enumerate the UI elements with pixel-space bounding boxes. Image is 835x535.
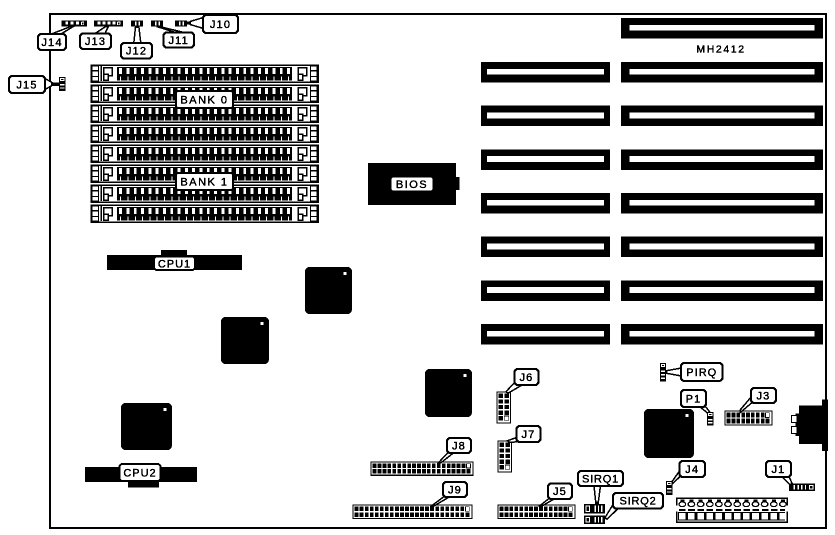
svg-text:PIRQ: PIRQ bbox=[686, 367, 717, 379]
svg-text:MH2412: MH2412 bbox=[696, 44, 745, 56]
svg-text:BIOS: BIOS bbox=[396, 179, 428, 191]
svg-text:J1: J1 bbox=[771, 464, 785, 476]
svg-text:CPU1: CPU1 bbox=[158, 258, 191, 270]
svg-text:J8: J8 bbox=[452, 440, 466, 452]
svg-text:J7: J7 bbox=[521, 429, 535, 441]
svg-text:J12: J12 bbox=[126, 46, 147, 58]
svg-text:CPU2: CPU2 bbox=[123, 467, 156, 479]
svg-text:J13: J13 bbox=[85, 36, 106, 48]
svg-text:J11: J11 bbox=[168, 35, 189, 47]
svg-text:SIRQ1: SIRQ1 bbox=[582, 473, 619, 485]
svg-text:BANK 1: BANK 1 bbox=[180, 176, 228, 188]
svg-text:J15: J15 bbox=[16, 79, 37, 91]
svg-text:BANK 0: BANK 0 bbox=[180, 94, 228, 106]
svg-text:SIRQ2: SIRQ2 bbox=[619, 496, 656, 508]
svg-text:J14: J14 bbox=[41, 37, 62, 49]
svg-text:J10: J10 bbox=[210, 19, 231, 31]
svg-text:J3: J3 bbox=[756, 390, 770, 402]
svg-text:J6: J6 bbox=[519, 372, 533, 384]
svg-text:J4: J4 bbox=[685, 464, 699, 476]
svg-text:J5: J5 bbox=[553, 486, 567, 498]
svg-text:P1: P1 bbox=[686, 393, 702, 405]
svg-text:J9: J9 bbox=[448, 484, 462, 496]
